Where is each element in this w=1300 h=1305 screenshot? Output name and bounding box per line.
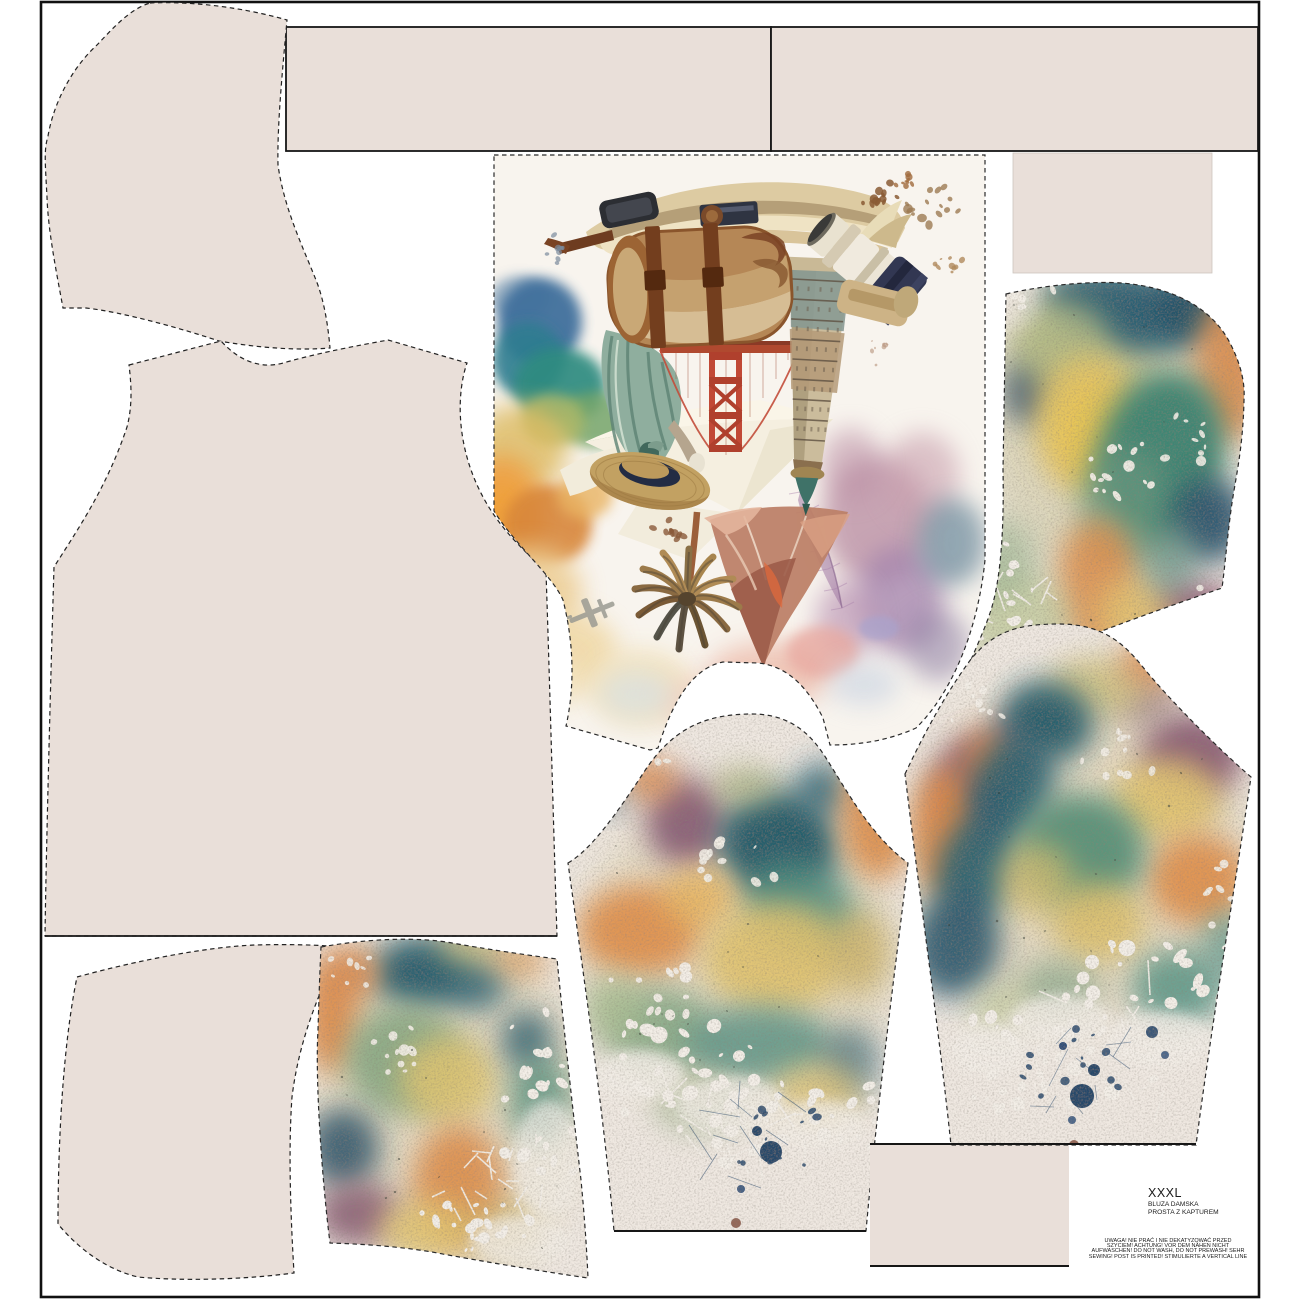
svg-text:SEWING! POST IS PRINTED! STIMU: SEWING! POST IS PRINTED! STIMULIERTE A V…	[1089, 1254, 1248, 1260]
svg-text:XXXL: XXXL	[1148, 1186, 1182, 1200]
svg-text:PROSTA Z KAPTUREM: PROSTA Z KAPTUREM	[1148, 1209, 1219, 1216]
svg-text:BLUZA DAMSKA: BLUZA DAMSKA	[1148, 1201, 1199, 1208]
